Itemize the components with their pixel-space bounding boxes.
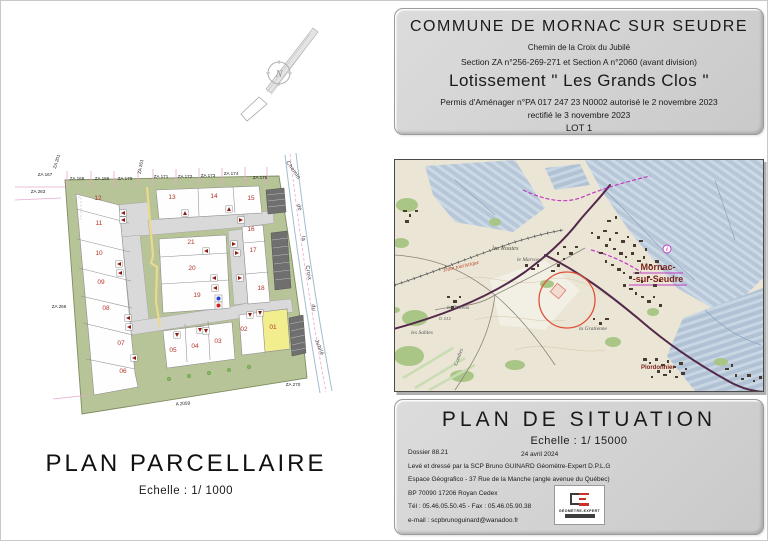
lot-number-19: 19 <box>193 292 201 299</box>
za-label: ZA 171 <box>154 174 169 179</box>
lot-entrance-marker <box>203 248 209 254</box>
za-label: ZA 174 <box>224 171 239 176</box>
building <box>563 246 566 248</box>
za-label: ZA 266 <box>52 304 67 309</box>
situation-block: PLAN DE SITUATION Echelle : 1/ 15000 Dos… <box>394 399 764 535</box>
lot-entrance-marker <box>117 270 123 276</box>
lot-number-01: 01 <box>269 324 277 331</box>
building <box>731 364 733 367</box>
lot-number-08: 08 <box>102 305 110 312</box>
building <box>615 232 618 234</box>
building <box>593 318 595 320</box>
lot-entrance-marker <box>257 310 263 316</box>
lot-entrance-marker <box>182 210 188 216</box>
logo-caption: GÉOMÈTRE-EXPERT <box>559 509 600 513</box>
map-label: la Gratienne <box>579 326 608 332</box>
cadastre-sections: Section ZA n°256-269-271 et Section A n°… <box>395 57 763 67</box>
building <box>623 272 625 274</box>
za-label: ZA 261 <box>137 159 145 175</box>
building <box>735 374 737 377</box>
building <box>623 284 626 287</box>
road-name-word: Croix <box>304 265 312 281</box>
building <box>653 296 655 298</box>
plan-parcellaire-scale: Echelle : 1/ 1000 <box>41 485 331 497</box>
building <box>643 256 645 259</box>
building <box>557 264 560 267</box>
building <box>633 244 636 247</box>
compass-north-letter: N <box>275 69 284 80</box>
building <box>525 264 528 267</box>
map-label: Mornac- <box>640 262 675 272</box>
building <box>557 252 559 255</box>
za-label: ZA 270 <box>286 382 301 387</box>
za-label: ZA 175 <box>253 175 268 180</box>
building <box>631 252 634 255</box>
map-label: les Sables <box>411 330 433 336</box>
building <box>599 322 602 325</box>
building <box>405 220 409 223</box>
building <box>681 372 685 375</box>
lot-entrance-marker <box>120 217 126 223</box>
lot-number-10: 10 <box>95 250 103 257</box>
za-label: ZA 170 <box>118 176 133 181</box>
building <box>679 362 683 365</box>
lot-number-20: 20 <box>188 265 196 272</box>
building <box>741 378 744 380</box>
building <box>403 210 407 212</box>
utility-symbols <box>215 295 222 309</box>
lot-entrance-marker <box>234 250 240 256</box>
dossier-number: Dossier 88.21 <box>408 449 610 456</box>
building <box>617 268 621 271</box>
building <box>645 248 647 251</box>
lot-entrance-marker <box>131 355 137 361</box>
building <box>609 238 611 241</box>
building <box>629 276 632 279</box>
situation-map-drawing: les Routesle MarvosaMornac--sur-Seudrele… <box>395 160 763 391</box>
za-label: ZA 168 <box>70 176 85 181</box>
plan-situation-title: PLAN DE SITUATION <box>395 408 763 432</box>
za-label: A 2059 <box>176 400 191 406</box>
building <box>569 252 573 255</box>
building <box>747 374 751 377</box>
za-label: ZA 173 <box>201 173 216 178</box>
building <box>651 376 653 378</box>
plan-situation-scale: Echelle : 1/ 15000 <box>395 435 763 447</box>
building <box>653 284 657 287</box>
geometre-expert-logo: GÉOMÈTRE-EXPERT <box>554 485 605 525</box>
road-name-word: la <box>300 236 307 243</box>
za-label: ZA 201 <box>52 153 61 169</box>
office-line: Espace Géografico - 37 Rue de la Manche … <box>408 476 610 483</box>
building <box>591 232 593 234</box>
building <box>597 236 600 239</box>
building <box>647 300 651 303</box>
building <box>725 368 729 370</box>
lot-entrance-marker <box>226 206 232 212</box>
lot-entrance-marker <box>212 285 218 291</box>
title-block: COMMUNE DE MORNAC SUR SEUDRE Chemin de l… <box>394 8 764 135</box>
map-label: le Marvosa <box>517 257 542 263</box>
building <box>605 260 607 263</box>
building <box>605 318 609 320</box>
building <box>675 376 678 378</box>
lot-number-11: 11 <box>96 220 103 227</box>
building <box>685 368 687 370</box>
building <box>753 380 755 382</box>
building <box>639 240 643 242</box>
logo-strip <box>565 514 595 518</box>
lot-number-04: 04 <box>191 343 199 350</box>
lot-number-06: 06 <box>119 368 127 375</box>
lot-entrance-marker <box>231 241 237 247</box>
building <box>643 358 647 361</box>
building <box>537 264 539 267</box>
lot-entrance-marker <box>197 327 203 333</box>
map-label: les Routes <box>492 245 519 252</box>
lot-number-13: 13 <box>168 194 176 201</box>
lot-number-14: 14 <box>210 193 218 200</box>
map-label: Plordonnier <box>641 365 675 371</box>
lot-entrance-marker <box>126 324 132 330</box>
logo-ge-glyph-icon <box>570 493 589 506</box>
commune-title: COMMUNE DE MORNAC SUR SEUDRE <box>395 9 763 36</box>
lot-number-15: 15 <box>247 195 255 202</box>
plan-parcellaire-title: PLAN PARCELLAIRE <box>41 450 331 478</box>
lot-entrance-marker <box>116 261 122 267</box>
za-label: ZA 169 <box>95 176 110 181</box>
building <box>605 244 608 247</box>
building <box>629 288 633 290</box>
address-line: Chemin de la Croix du Jubilé <box>395 43 763 52</box>
building <box>619 252 623 255</box>
lot-entrance-marker <box>238 217 244 223</box>
lot-number-21: 21 <box>187 239 195 246</box>
lot-number-12: 12 <box>94 195 102 202</box>
building <box>635 292 637 295</box>
building <box>459 296 461 298</box>
lot-number-18: 18 <box>257 285 265 292</box>
lot-number-07: 07 <box>117 340 125 347</box>
road-name-word: de <box>295 203 303 211</box>
lot-number-02: 02 <box>240 326 248 333</box>
building <box>575 246 578 248</box>
building <box>663 374 667 376</box>
lot-number-17: 17 <box>249 247 257 254</box>
building <box>667 360 669 363</box>
surveyor-line: Levé et dressé par la SCP Bruno GUINARD … <box>408 463 610 470</box>
za-label: ZA 263 <box>31 189 46 194</box>
lot-number-16: 16 <box>247 226 255 233</box>
building <box>453 300 457 303</box>
lot-number-03: 03 <box>214 338 222 345</box>
lot-number-09: 09 <box>97 279 105 286</box>
north-compass-icon: N <box>241 28 318 121</box>
building <box>759 376 762 379</box>
building <box>563 258 565 260</box>
building <box>409 214 411 217</box>
building <box>607 220 611 222</box>
building <box>649 362 651 364</box>
map-label: -sur-Seudre <box>633 274 684 284</box>
lot-entrance-marker <box>120 210 126 216</box>
lot-number-line: LOT 1 <box>395 123 763 134</box>
building <box>551 270 555 272</box>
map-label: le Callens <box>447 305 469 311</box>
plan-base-geometry <box>15 153 332 414</box>
lot-entrance-marker <box>247 312 253 318</box>
lot-entrance-marker <box>237 275 243 281</box>
building <box>625 256 627 258</box>
za-label: ZA 167 <box>38 172 53 177</box>
building <box>611 264 614 266</box>
lot-number-05: 05 <box>169 347 177 354</box>
building <box>641 296 644 298</box>
permis-line: Permis d'Aménager n°PA 017 247 23 N0002 … <box>395 97 763 107</box>
road-name-word: du <box>310 304 317 312</box>
building <box>655 358 658 361</box>
lot-entrance-marker <box>203 328 209 334</box>
building <box>415 210 418 212</box>
building <box>615 216 617 219</box>
document-date: 24 avril 2024 <box>521 451 558 458</box>
rectification-line: rectifié le 3 novembre 2023 <box>395 110 763 120</box>
lot-entrance-marker <box>125 315 131 321</box>
building <box>613 248 616 250</box>
building <box>447 296 450 298</box>
lot-entrance-marker <box>211 275 217 281</box>
za-label: ZA 172 <box>178 174 193 179</box>
building <box>531 268 535 270</box>
building <box>599 252 603 254</box>
building <box>621 240 625 243</box>
map-label: D 242 <box>439 316 452 321</box>
building <box>603 230 607 232</box>
lotissement-name: Lotissement " Les Grands Clos " <box>395 71 763 91</box>
situation-map-panel: les Routesle MarvosaMornac--sur-Seudrele… <box>394 159 764 392</box>
lot-entrance-marker <box>174 332 180 338</box>
building <box>659 304 662 307</box>
building <box>627 236 629 238</box>
document-sheet: N <box>0 0 768 541</box>
